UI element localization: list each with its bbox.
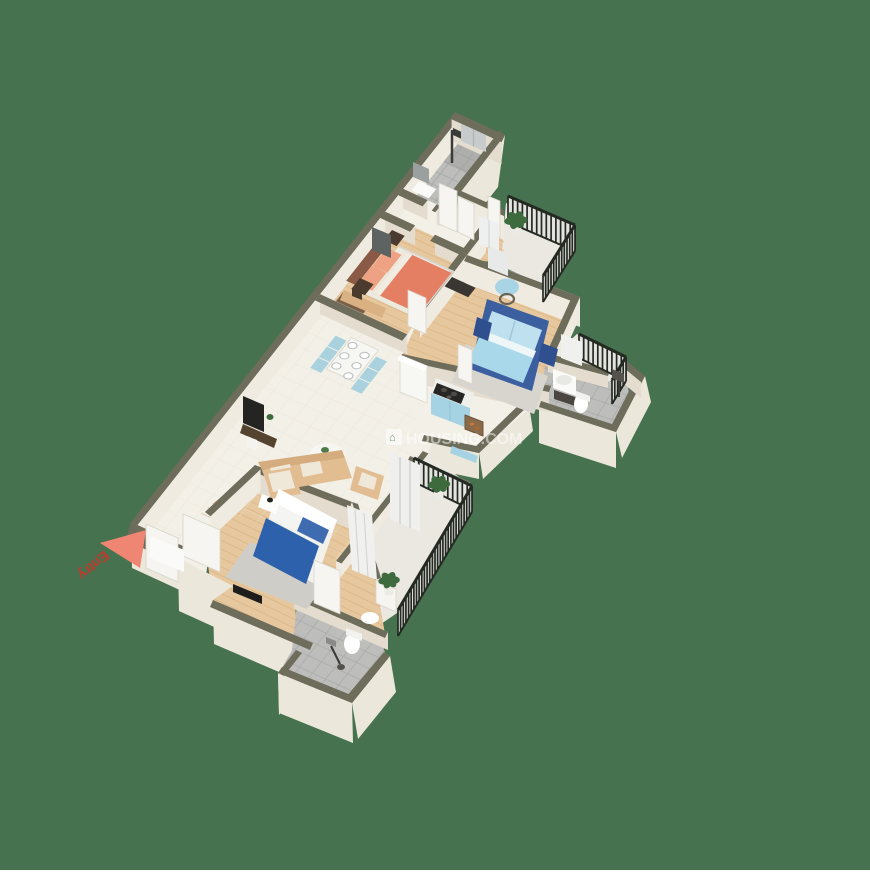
svg-text:HOUSING.COM: HOUSING.COM (406, 431, 522, 448)
svg-text:⌂: ⌂ (389, 432, 396, 444)
